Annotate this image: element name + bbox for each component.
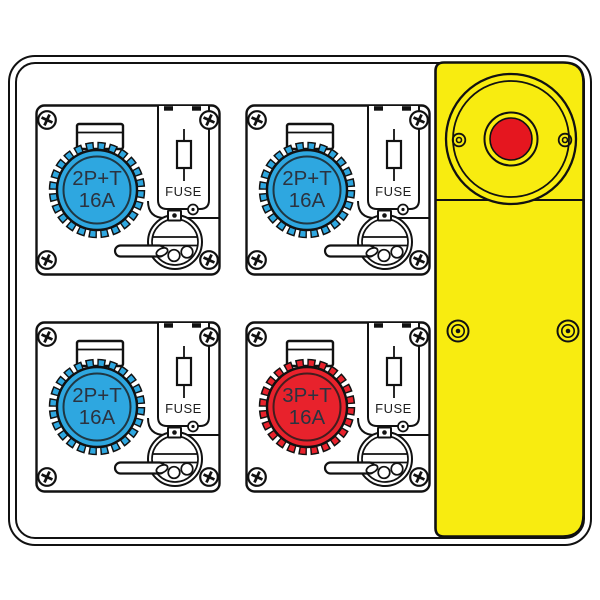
interlock-latch-dot [382,213,387,218]
socket-label-line1: 2P+T [72,384,122,407]
interlock-hole [168,250,180,262]
corner-screw-icon [200,111,218,129]
socket-label-line2: 16A [79,406,116,429]
interlock-hole [181,246,193,258]
interlock-screw-icon [188,422,198,432]
socket-label-line1: 3P+T [282,384,332,407]
corner-screw-icon [410,251,428,269]
corner-screw-icon [248,468,266,486]
socket-label-line2: 16A [79,189,116,212]
interlock-hole [168,467,180,479]
socket-label-line1: 2P+T [72,167,122,190]
interlock-latch-dot [172,213,177,218]
interlock-hole [378,250,390,262]
corner-screw-icon [248,328,266,346]
interlock-hole [391,246,403,258]
corner-screw-icon [38,328,56,346]
socket-module-top-left: FUSE 2P+T 16A [35,104,221,276]
socket-label-line2: 16A [289,406,326,429]
interlock-latch-dot [382,430,387,435]
socket-module-bottom-right: FUSE 3P+T 16A [245,321,431,493]
interlock-screw-icon [398,205,408,215]
fuse-cover-tab [192,323,201,328]
fuse-cover-tab [164,323,173,328]
socket-label-line1: 2P+T [282,167,332,190]
fuse-cover-tab [402,323,411,328]
interlock-screw-icon [188,205,198,215]
fuse-icon [387,141,401,168]
fuse-cover-tab [192,106,201,111]
distribution-board-drawing: FUSE 2P+T 16A [0,0,600,600]
interlock-hole [378,467,390,479]
fuse-cover-tab [402,106,411,111]
fuse-label: FUSE [375,401,412,416]
socket-module-bottom-left: FUSE 2P+T 16A [35,321,221,493]
corner-screw-icon [410,328,428,346]
interlock-screw-icon [398,422,408,432]
fuse-icon [387,358,401,385]
fuse-cover-tab [374,323,383,328]
interlock-hole [391,463,403,475]
corner-screw-icon [248,251,266,269]
corner-screw-icon [410,111,428,129]
corner-screw-icon [200,328,218,346]
corner-screw-icon [200,468,218,486]
corner-screw-icon [200,251,218,269]
fuse-label: FUSE [165,184,202,199]
corner-screw-icon [410,468,428,486]
corner-screw-icon [38,468,56,486]
corner-screw-icon [38,251,56,269]
interlock-hole [181,463,193,475]
fuse-label: FUSE [165,401,202,416]
emergency-stop-panel [434,61,585,538]
fuse-icon [177,358,191,385]
socket-module-top-right: FUSE 2P+T 16A [245,104,431,276]
interlock-latch-dot [172,430,177,435]
fuse-label: FUSE [375,184,412,199]
corner-screw-icon [248,111,266,129]
socket-label-line2: 16A [289,189,326,212]
fuse-cover-tab [164,106,173,111]
emergency-stop-button [490,118,532,160]
corner-screw-icon [38,111,56,129]
fuse-cover-tab [374,106,383,111]
fuse-icon [177,141,191,168]
